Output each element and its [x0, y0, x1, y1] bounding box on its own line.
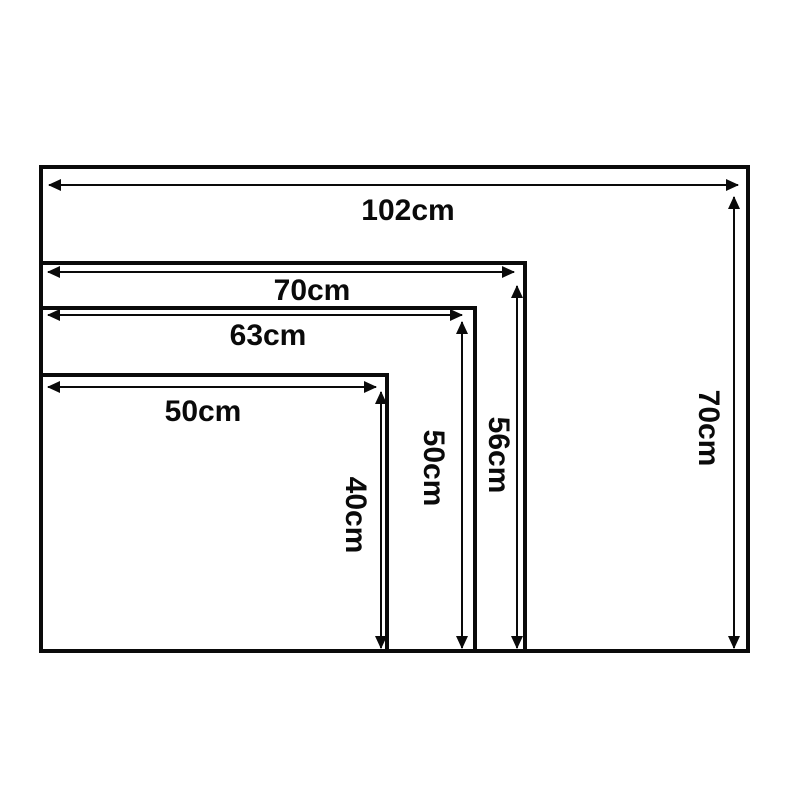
size-comparison-diagram: 102cm 70cm 63cm 50cm 70cm 56cm 50cm 40cm — [0, 0, 800, 800]
height-arrow-70cm — [733, 197, 735, 648]
height-arrow-40cm — [380, 392, 382, 648]
height-arrow-50cm — [461, 322, 463, 648]
width-label-70cm: 70cm — [274, 276, 351, 306]
width-arrow-50cm — [48, 386, 376, 388]
width-label-50cm: 50cm — [165, 397, 242, 427]
height-label-50cm: 50cm — [418, 430, 448, 507]
width-label-63cm: 63cm — [230, 321, 307, 351]
height-arrow-56cm — [516, 286, 518, 648]
width-arrow-70cm — [48, 271, 514, 273]
height-label-70cm: 70cm — [693, 390, 723, 467]
height-label-56cm: 56cm — [483, 417, 513, 494]
width-label-102cm: 102cm — [361, 196, 454, 226]
width-arrow-102cm — [49, 184, 738, 186]
width-arrow-63cm — [48, 314, 462, 316]
height-label-40cm: 40cm — [340, 477, 370, 554]
